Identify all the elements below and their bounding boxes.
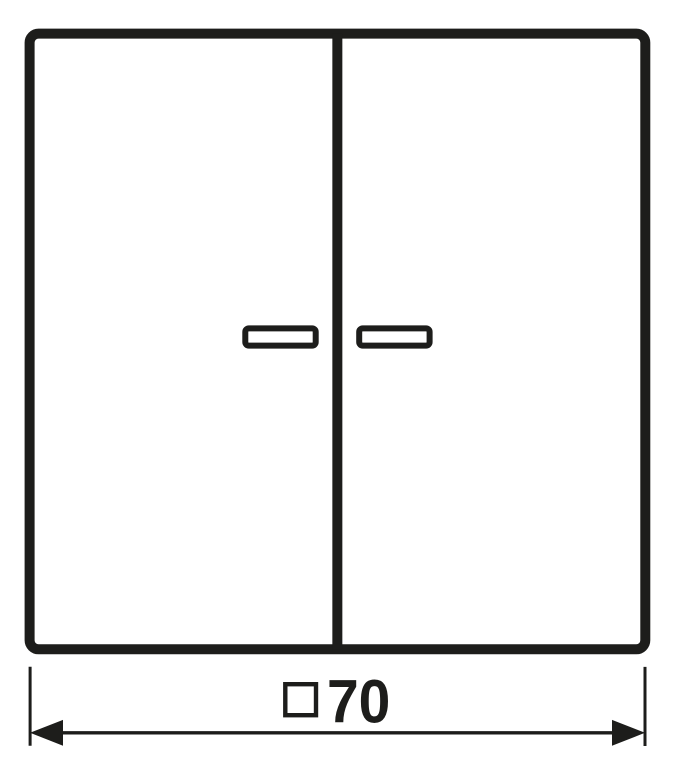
svg-text:70: 70 bbox=[327, 668, 390, 736]
